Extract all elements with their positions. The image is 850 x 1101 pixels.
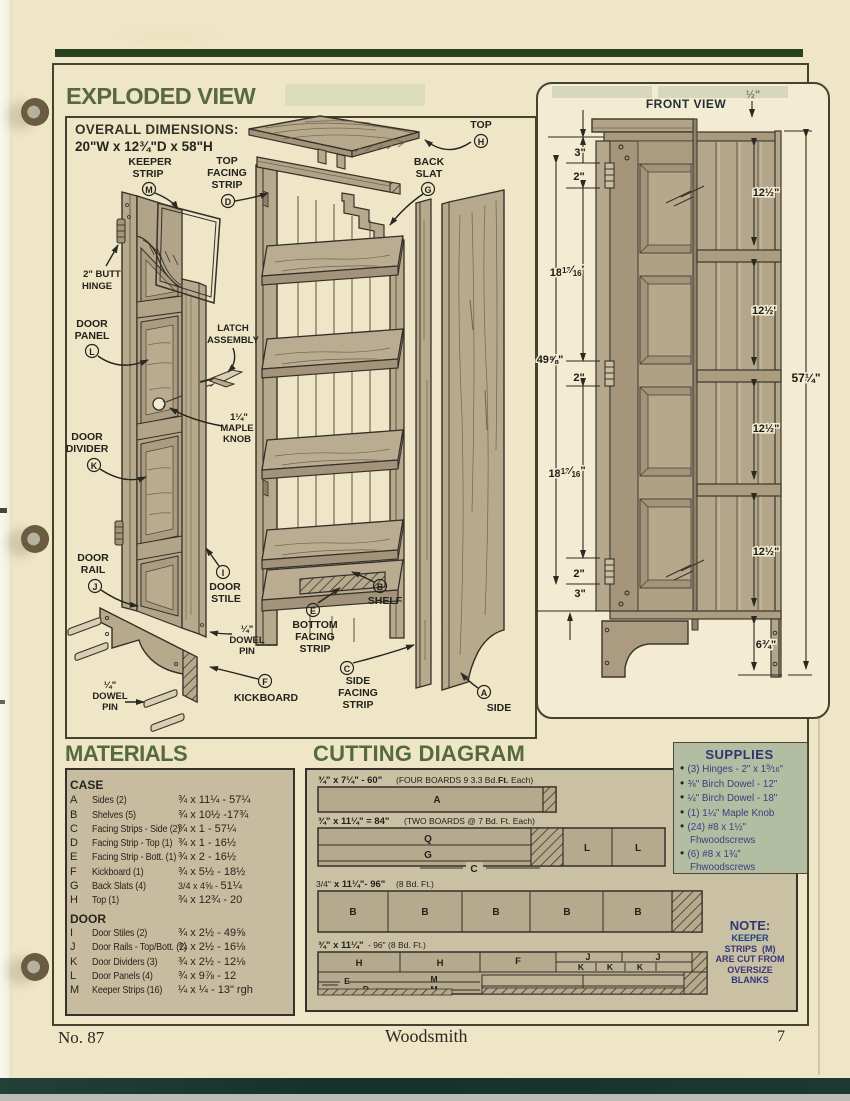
svg-text:K: K — [637, 962, 644, 972]
svg-text:STILE: STILE — [211, 593, 241, 605]
svg-text:LATCH: LATCH — [217, 323, 249, 334]
svg-text:I: I — [222, 568, 225, 578]
svg-text:3": 3" — [574, 147, 585, 159]
svg-text:STRIP: STRIP — [212, 179, 243, 191]
svg-text:FACING: FACING — [295, 631, 335, 643]
svg-text:3": 3" — [574, 588, 585, 600]
svg-text:FACING: FACING — [207, 167, 247, 179]
svg-text:2": 2" — [573, 372, 584, 384]
svg-text:1¼": 1¼" — [230, 412, 248, 423]
svg-text:49⅝": 49⅝" — [537, 354, 564, 366]
svg-text:12½': 12½' — [752, 305, 776, 317]
svg-text:E: E — [344, 976, 350, 986]
svg-text:SHELF: SHELF — [368, 595, 403, 607]
svg-text:Each): Each) — [511, 775, 533, 785]
svg-text:B: B — [492, 907, 499, 918]
svg-text:M: M — [430, 974, 437, 984]
svg-text:6¾": 6¾" — [756, 639, 777, 651]
svg-text:H: H — [356, 958, 363, 969]
svg-text:B: B — [349, 907, 356, 918]
svg-text:A: A — [433, 795, 440, 806]
svg-text:B: B — [563, 907, 570, 918]
svg-text:DOWEL: DOWEL — [229, 635, 265, 646]
svg-text:Ft.: Ft. — [498, 775, 508, 785]
svg-text:L: L — [635, 843, 641, 854]
svg-text:G: G — [424, 185, 431, 195]
svg-text:M: M — [145, 185, 153, 195]
svg-text:12½": 12½" — [753, 546, 780, 558]
svg-text:KICKBOARD: KICKBOARD — [234, 692, 299, 704]
svg-text:12½": 12½" — [753, 187, 780, 199]
svg-text:H: H — [437, 958, 444, 969]
svg-text:PIN: PIN — [239, 646, 255, 657]
svg-text:J: J — [92, 582, 97, 592]
svg-text:F: F — [262, 677, 268, 687]
svg-text:DOOR: DOOR — [77, 552, 109, 564]
svg-text:2": 2" — [573, 171, 584, 183]
svg-text:PANEL: PANEL — [75, 330, 110, 342]
svg-text:20"W x 12¾"D x 58"H: 20"W x 12¾"D x 58"H — [75, 139, 213, 154]
svg-text:ASSEMBLY: ASSEMBLY — [207, 335, 260, 346]
svg-text:MAPLE: MAPLE — [220, 423, 253, 434]
svg-text:STRIP: STRIP — [343, 699, 374, 711]
svg-text:DOOR: DOOR — [209, 581, 241, 593]
svg-text:BACK: BACK — [414, 156, 445, 168]
svg-text:J: J — [655, 952, 660, 962]
svg-text:OVERALL DIMENSIONS:: OVERALL DIMENSIONS: — [75, 122, 239, 137]
svg-text:FRONT VIEW: FRONT VIEW — [646, 97, 727, 111]
svg-text:3/4": 3/4" — [316, 879, 331, 889]
svg-text:(TWO BOARDS @ 7 Bd. Ft. Each): (TWO BOARDS @ 7 Bd. Ft. Each) — [404, 816, 535, 826]
svg-text:2" BUTT: 2" BUTT — [83, 269, 121, 280]
svg-text:K: K — [607, 962, 614, 972]
svg-text:K: K — [91, 461, 98, 471]
svg-text:H: H — [478, 137, 485, 147]
svg-text:x 11¼"- 96": x 11¼"- 96" — [334, 879, 385, 890]
svg-text:HINGE: HINGE — [82, 281, 112, 292]
svg-text:DOWEL: DOWEL — [92, 691, 128, 702]
svg-text:BOTTOM: BOTTOM — [292, 619, 338, 631]
svg-text:DOOR: DOOR — [76, 318, 108, 330]
svg-text:F: F — [515, 956, 521, 967]
svg-text:B: B — [421, 907, 428, 918]
svg-text:E: E — [310, 606, 316, 616]
svg-text:J: J — [585, 952, 590, 962]
svg-text:A: A — [481, 688, 488, 698]
svg-text:KEEPER: KEEPER — [128, 156, 172, 168]
svg-text:RAIL: RAIL — [81, 564, 106, 576]
svg-text:2": 2" — [573, 568, 584, 580]
svg-text:Q: Q — [424, 834, 432, 845]
svg-text:STRIP: STRIP — [300, 643, 331, 655]
svg-text:- 96" (8 Bd. Ft.): - 96" (8 Bd. Ft.) — [368, 940, 426, 950]
svg-text:¾" x 11¼": ¾" x 11¼" — [318, 940, 363, 951]
svg-text:SLAT: SLAT — [416, 168, 443, 180]
svg-text:12½": 12½" — [753, 423, 780, 435]
svg-text:L: L — [89, 347, 95, 357]
svg-text:1813⁄16': 1813⁄16' — [550, 264, 585, 279]
svg-text:B: B — [377, 582, 384, 592]
svg-text:57¼": 57¼" — [791, 371, 820, 385]
svg-text:DIVIDER: DIVIDER — [66, 443, 109, 455]
svg-text:TOP: TOP — [216, 155, 237, 167]
svg-text:B: B — [634, 907, 641, 918]
svg-text:¼": ¼" — [241, 624, 253, 635]
svg-text:DOOR: DOOR — [71, 431, 103, 443]
svg-text:C: C — [344, 664, 351, 674]
svg-text:TOP: TOP — [470, 119, 491, 131]
svg-text:¾" x 11¼" = 84": ¾" x 11¼" = 84" — [318, 816, 389, 827]
svg-text:¼": ¼" — [104, 680, 116, 691]
svg-text:PIN: PIN — [102, 702, 118, 713]
svg-text:STRIP: STRIP — [133, 168, 164, 180]
svg-text:FACING: FACING — [338, 687, 378, 699]
svg-text:KNOB: KNOB — [223, 434, 251, 445]
svg-text:D: D — [225, 197, 232, 207]
svg-text:1813⁄16": 1813⁄16" — [548, 465, 585, 480]
svg-text:SIDE: SIDE — [487, 702, 512, 714]
svg-text:C: C — [470, 864, 477, 875]
svg-text:(FOUR BOARDS 9 3.3 Bd.: (FOUR BOARDS 9 3.3 Bd. — [396, 775, 498, 785]
svg-text:(8 Bd. Ft.): (8 Bd. Ft.) — [396, 879, 434, 889]
svg-text:SIDE: SIDE — [346, 675, 371, 687]
svg-text:K: K — [578, 962, 585, 972]
svg-text:¾" x 7¼" - 60": ¾" x 7¼" - 60" — [318, 775, 382, 786]
svg-text:L: L — [584, 843, 590, 854]
svg-text:G: G — [424, 850, 432, 861]
